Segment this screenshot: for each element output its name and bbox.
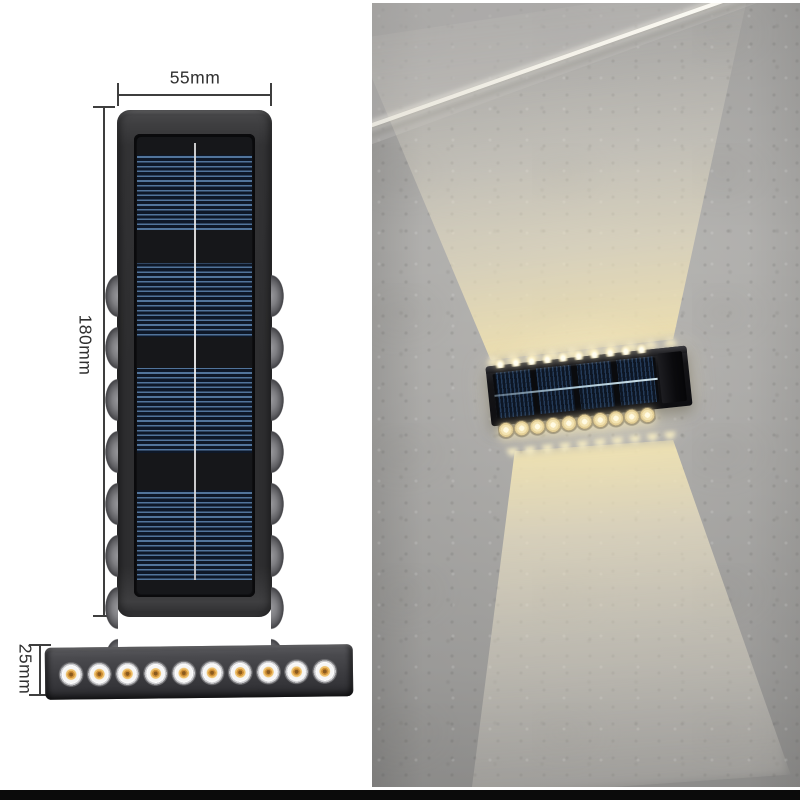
- width-label: 55mm: [170, 68, 221, 89]
- height-label: 180mm: [75, 315, 96, 376]
- dimension-diagram: 55mm 180mm 25mm: [0, 0, 372, 800]
- width-dimension-tick-left: [117, 83, 119, 106]
- wall-photo: [372, 3, 800, 787]
- lamp-top-view: [117, 110, 272, 617]
- side-view-led-row: [57, 647, 340, 696]
- depth-label: 25mm: [15, 644, 36, 695]
- width-dimension-line: [118, 94, 272, 96]
- lamp-side-view: [45, 644, 354, 700]
- led-bumps-right: [271, 270, 286, 686]
- bottom-black-bar: [0, 790, 800, 800]
- height-dimension-tick-top: [93, 106, 115, 108]
- fixture-end-cap: [657, 351, 687, 403]
- depth-dimension-line: [39, 645, 41, 696]
- led-bumps-left: [103, 270, 118, 686]
- product-image: 55mm 180mm 25mm: [0, 0, 800, 800]
- fixture-panel-line: [494, 377, 657, 396]
- solar-panel-centerline: [194, 143, 196, 580]
- width-dimension-tick-right: [270, 83, 272, 106]
- depth-dimension-tick-top: [29, 644, 51, 646]
